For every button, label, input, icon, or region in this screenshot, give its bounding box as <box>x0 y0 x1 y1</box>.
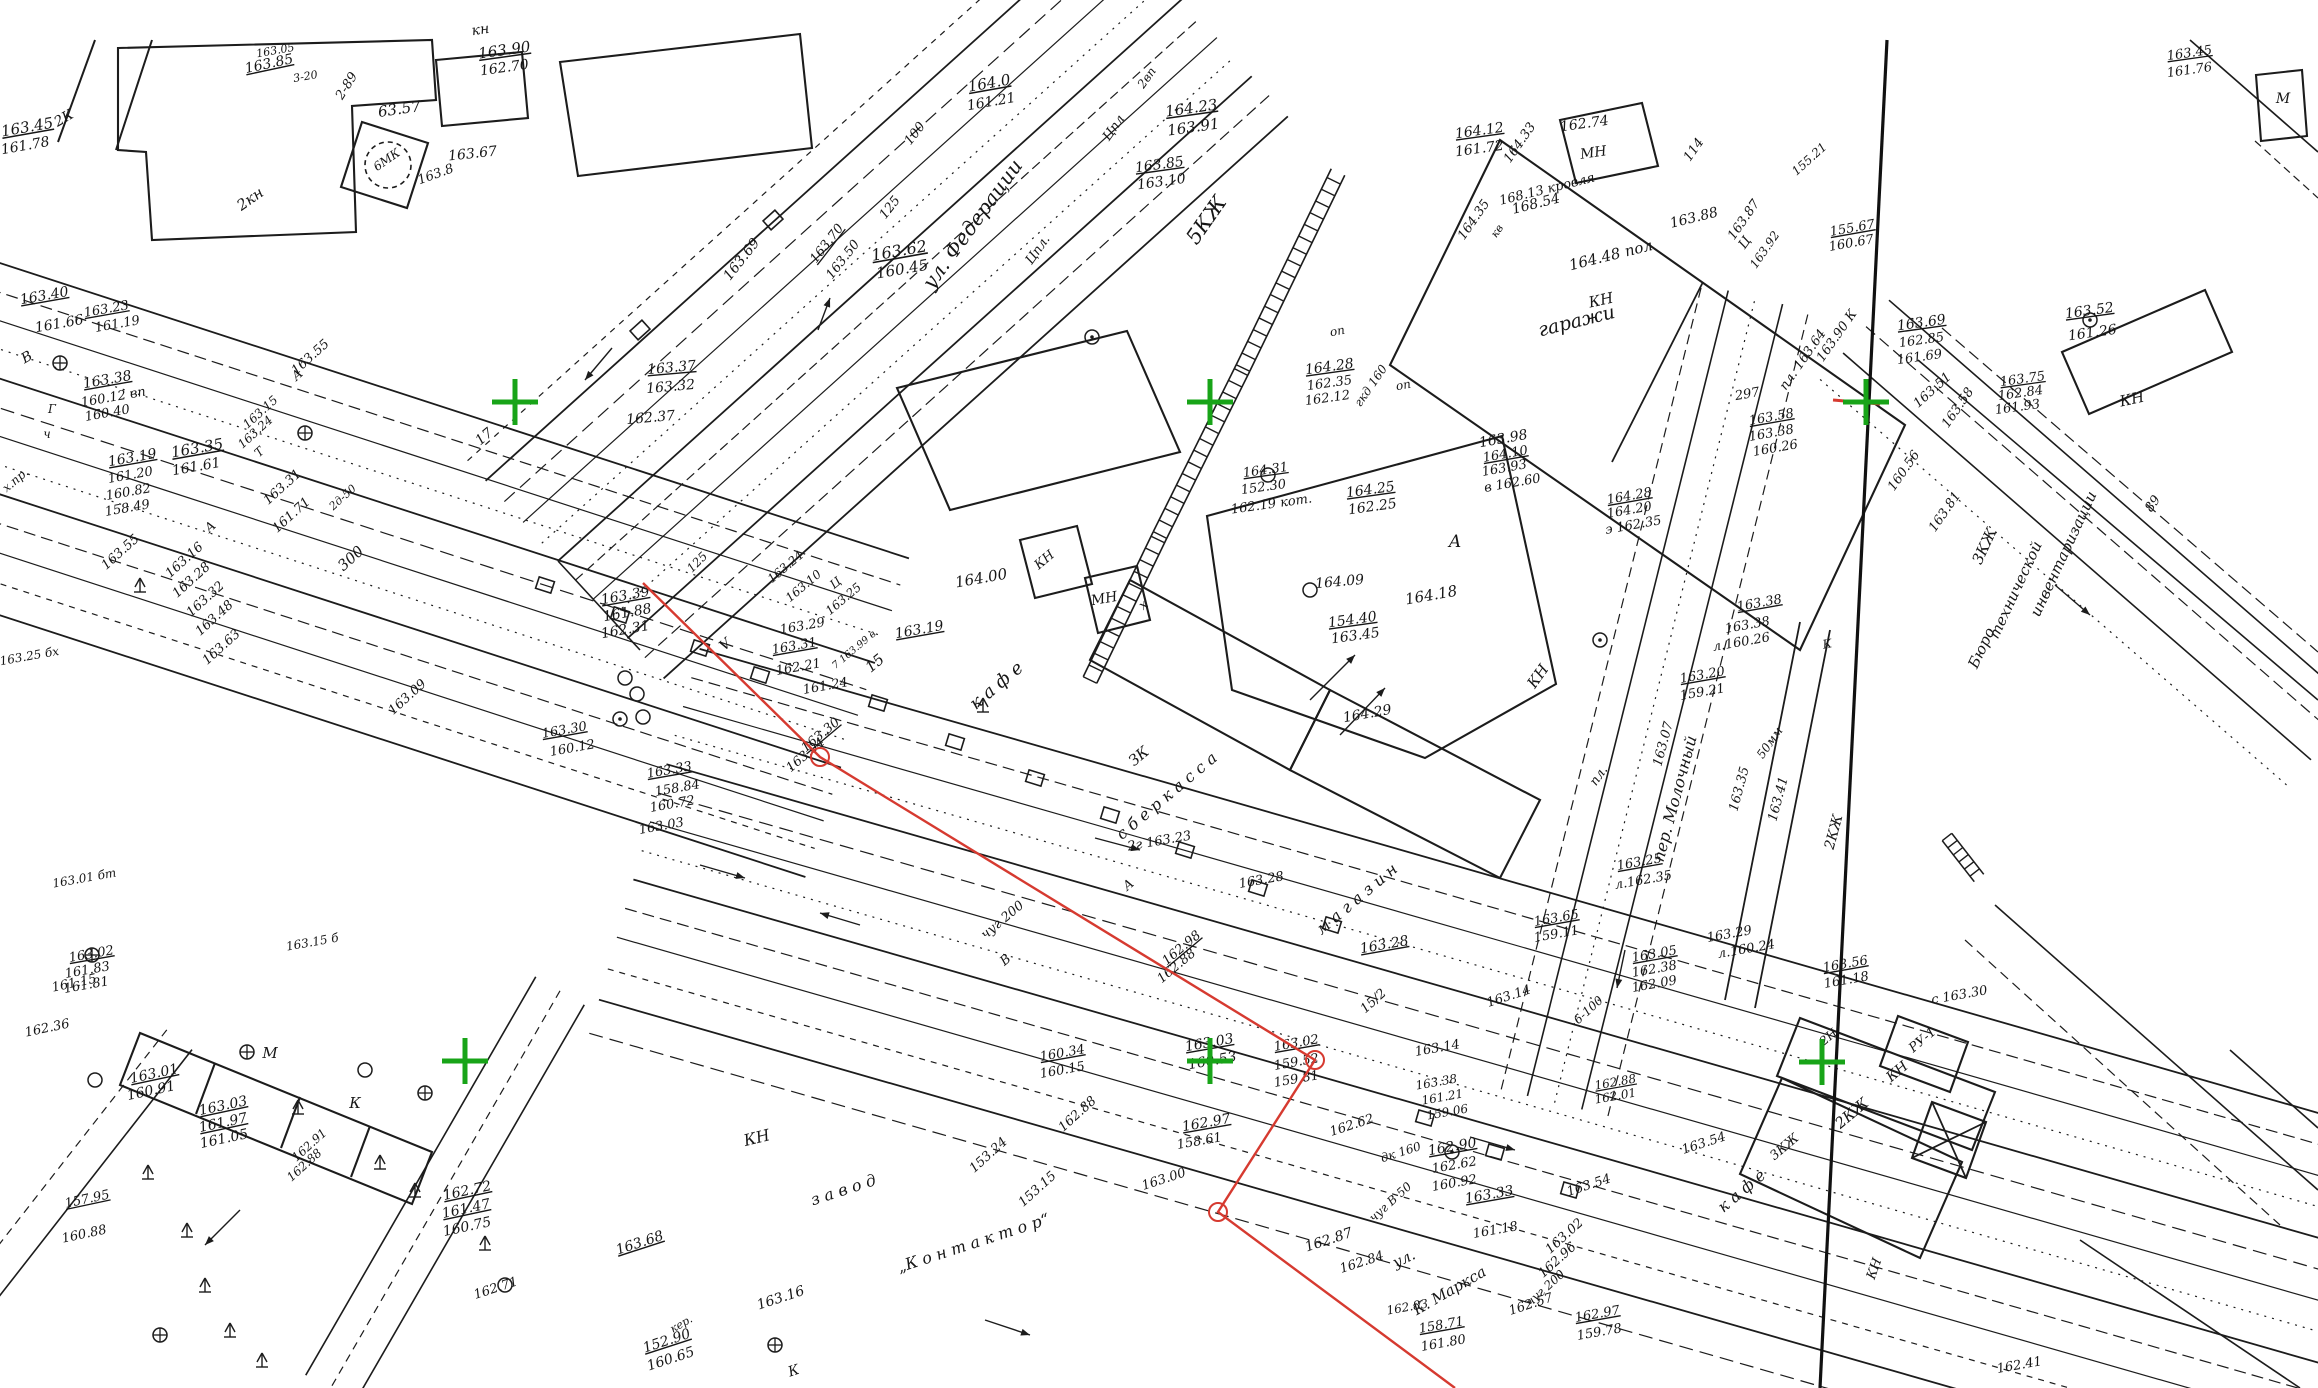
map-label: КН <box>1864 1256 1886 1283</box>
hatch-tick <box>1253 330 1266 337</box>
flow-arrow <box>1310 655 1355 700</box>
hatch-tick <box>1265 306 1278 313</box>
manhole-icon <box>88 1073 102 1087</box>
map-label: 163.01 бт <box>51 866 117 891</box>
map-label: КН <box>2117 388 2147 411</box>
map-label: 163.81 <box>1926 489 1964 535</box>
hatch-tick <box>1151 536 1165 543</box>
flow-arrow-head <box>1505 1144 1515 1151</box>
hatch-tick <box>1145 548 1159 555</box>
hatch-tick <box>1276 283 1289 290</box>
map-label: 161.18 <box>1472 1219 1519 1242</box>
map-label: х.пр. <box>0 465 31 495</box>
map-label: КН <box>1031 547 1058 573</box>
map-label: гкд 160 <box>1351 362 1390 409</box>
building-outline <box>1290 690 1540 878</box>
catch-basin-icon <box>946 734 965 750</box>
tree-icon <box>380 1155 385 1164</box>
hatch-tick <box>1293 248 1306 255</box>
hatch-tick <box>1942 833 1951 840</box>
map-label: 163.28 <box>1359 933 1410 957</box>
map-label: пл. <box>1587 763 1611 789</box>
hatch-tick <box>1304 224 1317 231</box>
street-line <box>558 0 1182 561</box>
hatch-tick <box>1194 450 1207 457</box>
map-label: „К о н т а к т о р“ <box>895 1209 1052 1276</box>
red-survey-line <box>643 583 1455 1388</box>
map-label: 17 <box>472 425 496 449</box>
map-label: 162.37 <box>626 408 676 428</box>
manhole-icon <box>358 1063 372 1077</box>
hatch-tick <box>1112 618 1126 625</box>
map-label: Цпл. <box>1023 233 1054 268</box>
hatch-tick <box>1964 862 1973 869</box>
hatch-tick <box>1259 318 1272 325</box>
map-label: 155.21 <box>1789 140 1830 179</box>
map-label: 163.68 <box>614 1228 666 1258</box>
map-label: 100 <box>902 119 929 148</box>
map-label: V <box>716 634 735 654</box>
map-label: 2кн <box>233 183 267 215</box>
map-line <box>116 40 152 150</box>
map-label: 163.58 <box>1939 385 1977 431</box>
map-label: 162.36 <box>23 1017 71 1041</box>
building-outline <box>1020 526 1092 598</box>
map-label: 63.57 <box>377 97 422 121</box>
map-label: 163.25 <box>823 580 864 618</box>
hatched-wall <box>1942 841 1974 882</box>
map-label: 163.25 бх <box>0 644 60 668</box>
map-label: 6-100 <box>1571 993 1606 1027</box>
hatch-tick <box>1205 427 1218 434</box>
map-label: 3КЖ <box>1968 524 2001 567</box>
map-label: 163.37 <box>647 358 697 378</box>
map-label: 297 <box>1733 385 1762 404</box>
map-label: 163.51 <box>1911 370 1955 412</box>
street-line <box>691 678 2318 1163</box>
map-label: 163.32 <box>646 377 696 397</box>
flow-arrow-head <box>1615 978 1622 988</box>
hatch-tick <box>1188 462 1201 469</box>
map-label: 164.09 <box>1315 572 1365 592</box>
hatch-tick <box>1159 520 1172 527</box>
map-label: В <box>997 952 1015 970</box>
hatch-tick <box>1287 259 1300 266</box>
map-label: К <box>785 1362 802 1381</box>
map-label: 3КЖ <box>1767 1131 1802 1164</box>
map-label: А <box>201 519 219 537</box>
map-label: Цпл <box>1100 112 1128 144</box>
map-label: 163.16 <box>755 1283 807 1313</box>
hatch-tick <box>1229 380 1242 387</box>
tree-icon <box>230 1323 235 1332</box>
map-label: 125 <box>877 193 904 222</box>
hatch-tick <box>1095 653 1109 660</box>
tree-icon <box>135 578 140 587</box>
tree-icon <box>298 1100 303 1109</box>
map-label: 125 <box>684 549 710 575</box>
tree-icon <box>205 1278 210 1287</box>
map-line <box>1995 905 2318 1190</box>
flow-arrow-head <box>1020 1329 1030 1336</box>
manhole-icon <box>636 710 650 724</box>
map-label: к а ф е <box>965 657 1027 714</box>
map-label: 163.15 б <box>285 930 340 953</box>
hatch-tick <box>1327 178 1340 185</box>
tree-icon <box>225 1323 230 1332</box>
scanned-survey-map: 163.85163.053-202-8963.57163.90162.70кн1… <box>0 0 2318 1388</box>
map-label: оп <box>1395 377 1412 393</box>
map-label: 164.29 <box>1342 702 1393 726</box>
map-label: 164.00 <box>954 565 1009 592</box>
map-label: 15/2 <box>1358 986 1390 1017</box>
map-label: 162.97 <box>1181 1111 1232 1135</box>
map-label: А <box>1448 532 1462 552</box>
map-label: А <box>1119 876 1137 894</box>
map-label: 162.21 <box>775 656 822 679</box>
street-line <box>542 0 1166 543</box>
map-label: ул. <box>1389 1245 1418 1271</box>
map-label: 163.67 <box>447 143 497 164</box>
map-label: 163.14 <box>1414 1037 1461 1060</box>
map-label: М <box>261 1044 278 1062</box>
map-label: 161.24 <box>802 675 849 698</box>
hatch-tick <box>1270 295 1283 302</box>
map-label: с б е р к а с с а <box>1112 748 1220 843</box>
map-label: 163.38 <box>1736 592 1783 615</box>
street-line <box>486 0 1110 481</box>
catch-basin-icon <box>630 320 650 340</box>
hatch-tick <box>1953 847 1962 854</box>
map-label: 5КЖ <box>1181 190 1232 249</box>
map-label: 157.95 <box>63 1188 111 1212</box>
map-label: 164.48 пол <box>1567 236 1654 274</box>
map-label: К <box>348 1094 361 1112</box>
map-label: 114 <box>1681 136 1708 165</box>
map-label: 164.33 <box>1501 120 1539 166</box>
hatch-tick <box>1153 532 1166 539</box>
building-outline <box>281 1097 300 1148</box>
map-label: 153.15 <box>1016 1169 1060 1211</box>
map-label: 163.54 <box>1680 1130 1728 1158</box>
map-label: 2К <box>51 106 78 131</box>
map-label: 163.41 <box>1765 775 1791 823</box>
map-label: с 163.30 <box>1930 983 1989 1008</box>
map-label: гаражи <box>1536 301 1617 341</box>
hatch-tick <box>1176 485 1189 492</box>
map-label: чуг В 50 <box>1366 1179 1414 1225</box>
map-label: МН <box>1578 143 1608 163</box>
map-label: 163.69 <box>720 235 763 284</box>
hatch-tick <box>1100 642 1114 649</box>
hatch-tick <box>1106 630 1120 637</box>
map-label: 162.62 <box>1328 1112 1376 1140</box>
map-label: МН <box>1089 589 1120 610</box>
map-label: Г <box>47 402 57 416</box>
map-label: 163.92 <box>1747 228 1783 270</box>
map-label: 161.26 <box>2067 322 2118 345</box>
hatch-tick <box>1140 560 1154 567</box>
map-label: 163.31 <box>771 635 818 658</box>
tree-icon <box>375 1155 380 1164</box>
map-label: Т <box>252 443 268 459</box>
map-line <box>2230 1050 2318 1128</box>
flow-arrow-head <box>824 298 831 308</box>
map-label: 89 <box>2142 493 2164 515</box>
manhole-dot <box>618 717 622 721</box>
catch-basin-icon <box>1101 807 1120 823</box>
tree-icon <box>140 578 145 587</box>
hatch-tick <box>1200 439 1213 446</box>
hatch-tick <box>1171 497 1184 504</box>
map-label: ЗК <box>1125 742 1153 770</box>
hatch-tick <box>1117 606 1131 613</box>
hatched-wall <box>1236 169 1331 365</box>
map-label: 2вп <box>1134 65 1159 92</box>
map-label: 164.18 <box>1404 582 1459 609</box>
flow-arrow-head <box>820 912 830 919</box>
tree-icon <box>182 1223 187 1232</box>
map-label: 2-89 <box>332 70 361 104</box>
hatch-tick <box>1223 392 1236 399</box>
hatch-tick <box>1182 473 1195 480</box>
manhole-icon <box>630 687 644 701</box>
map-label: К <box>1821 636 1834 652</box>
map-label: з а в о д <box>808 1170 878 1209</box>
map-label: м а г а з и н <box>1312 859 1401 938</box>
hatch-tick <box>1282 271 1295 278</box>
map-label: 162.74 <box>1559 113 1610 136</box>
hatched-wall <box>1250 175 1345 371</box>
hatch-tick <box>1242 353 1255 360</box>
map-label: 163.09 <box>386 677 430 719</box>
manhole-icon <box>618 671 632 685</box>
hatch-tick <box>1083 677 1097 684</box>
tree-icon <box>480 1236 485 1245</box>
map-line <box>1612 282 1703 462</box>
map-label: КН <box>1883 1058 1912 1086</box>
map-label: дк 160 <box>1379 1139 1423 1165</box>
building-outline <box>1777 1018 1995 1150</box>
building-outline <box>1560 103 1658 183</box>
map-label: 15 <box>862 650 888 676</box>
map-canvas: 163.85163.053-202-8963.57163.90162.70кн1… <box>0 0 2318 1388</box>
building-outline <box>1090 580 1330 770</box>
map-label: чуг 200 <box>978 898 1027 942</box>
map-label: ул. Федерации <box>917 154 1028 294</box>
building-outline <box>351 1126 370 1177</box>
map-label: 162.71 <box>472 1275 520 1303</box>
street-line <box>306 977 536 1375</box>
hatch-tick <box>1165 508 1178 515</box>
street-line <box>1843 353 2311 760</box>
map-label: КН <box>741 1125 773 1150</box>
tree-icon <box>200 1278 205 1287</box>
hatch-tick <box>1316 201 1329 208</box>
map-label: ч <box>43 427 50 441</box>
hatch-tick <box>1310 213 1323 220</box>
street-line <box>658 793 2318 1278</box>
map-label: 163.28 <box>1238 869 1285 892</box>
tree-icon <box>485 1236 490 1245</box>
map-label: 160.88 <box>60 1223 108 1247</box>
map-label: 163.35 <box>1726 765 1752 813</box>
map-label: 163.40 <box>19 284 70 308</box>
map-label: 163.00 <box>1140 1166 1188 1194</box>
map-label: 2КЖ <box>1822 812 1847 853</box>
map-label: Ц <box>827 574 844 592</box>
building-outline <box>560 34 812 176</box>
map-label: 163.88 <box>1668 204 1719 231</box>
hatched-wall <box>1153 365 1236 532</box>
map-label: В <box>18 348 36 368</box>
map-label: 3-20 <box>292 68 319 85</box>
map-label: 163.19 <box>894 618 945 642</box>
tree-icon <box>187 1223 192 1232</box>
map-label: 163.29 <box>779 615 826 638</box>
tree-icon <box>143 1165 148 1174</box>
street-line <box>633 880 2318 1365</box>
map-label: 163.55 <box>99 532 143 574</box>
tree-icon <box>257 1353 262 1362</box>
manhole-dot <box>1598 638 1602 642</box>
map-label: кв <box>1488 222 1506 240</box>
street-line <box>575 18 1199 580</box>
hatch-tick <box>1970 869 1979 876</box>
hatch-tick <box>1211 415 1224 422</box>
map-label: 153.24 <box>967 1135 1011 1177</box>
hatched-wall <box>1952 833 1984 874</box>
hatch-tick <box>1959 855 1968 862</box>
catch-basin-icon <box>763 210 783 230</box>
street-line <box>0 239 900 585</box>
tree-icon <box>148 1165 153 1174</box>
catch-basin-icon <box>691 640 710 656</box>
hatch-tick <box>1948 840 1957 847</box>
map-label: 163.54 <box>1565 1172 1613 1200</box>
hatch-tick <box>1123 595 1137 602</box>
map-label: оп <box>1329 323 1346 339</box>
catch-basin-icon <box>869 695 888 711</box>
hatch-tick <box>1248 341 1261 348</box>
tree-icon <box>262 1353 267 1362</box>
hatch-tick <box>1299 236 1312 243</box>
map-label: 163.52 <box>2064 300 2115 323</box>
map-label: кн <box>471 21 491 39</box>
hatch-tick <box>1134 571 1148 578</box>
hatch-tick <box>1321 189 1334 196</box>
map-label: 50мм <box>1754 724 1786 761</box>
street-line <box>700 649 2318 1134</box>
map-label: 163.03 <box>638 815 685 838</box>
map-label: 162.84 <box>1338 1249 1386 1277</box>
hatch-tick <box>1217 404 1230 411</box>
map-label: 160.12 <box>549 737 596 760</box>
map-label: 6МК <box>371 145 404 174</box>
hatched-wall <box>1097 538 1167 683</box>
street-line <box>675 735 2318 1220</box>
street-line <box>610 57 1234 619</box>
flow-arrow-head <box>735 872 745 879</box>
map-label: М <box>2275 91 2291 107</box>
manhole-dot <box>1090 335 1094 339</box>
map-line <box>2255 141 2318 198</box>
street-line <box>0 475 824 821</box>
map-label: 161.66 <box>34 312 85 336</box>
